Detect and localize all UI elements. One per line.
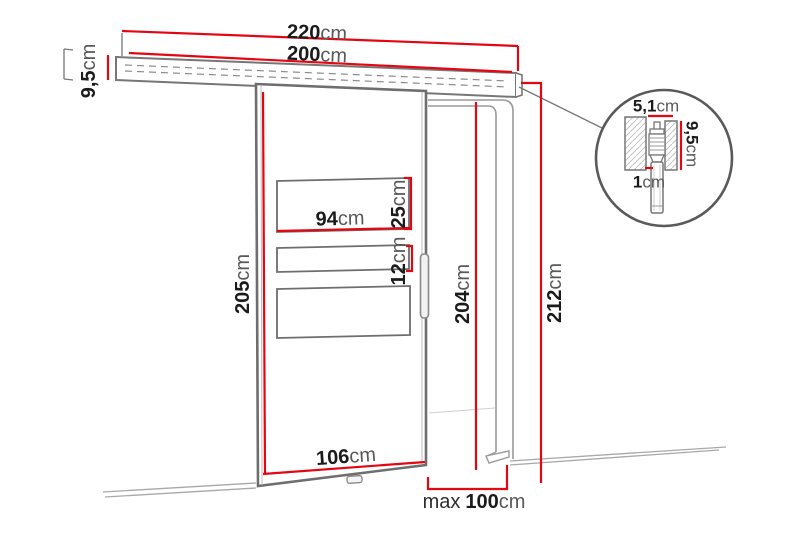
dim-glass-mid-height-label: 12cm xyxy=(389,237,409,286)
dim-detail-gap-label: 1cm xyxy=(633,174,665,191)
dim-value: 9,5 xyxy=(683,121,702,145)
sliding-door-diagram: 220cm 200cm 9,5cm 205cm 94cm 25cm 12cm 2… xyxy=(0,0,800,533)
floor-guide xyxy=(347,475,362,483)
dim-unit: cm xyxy=(452,264,474,291)
dim-value: 212 xyxy=(544,290,566,323)
dim-unit: cm xyxy=(642,173,665,192)
dim-opening-height-label: 204cm xyxy=(453,264,473,324)
dim-unit: cm xyxy=(499,491,526,513)
dim-overall-height-label: 212cm xyxy=(545,263,565,323)
dim-value: 204 xyxy=(452,291,474,324)
dim-value: 9,5 xyxy=(78,70,100,98)
dim-detail-height-label: 9,5cm xyxy=(684,121,701,167)
dim-unit: cm xyxy=(320,44,348,67)
dim-rail-height-label: 9,5cm xyxy=(79,44,99,98)
dim-unit: cm xyxy=(388,180,410,207)
dim-unit: cm xyxy=(320,22,347,45)
dim-value: 106 xyxy=(315,446,350,470)
dim-value: 205 xyxy=(232,281,254,314)
glass-panel-bottom xyxy=(277,286,410,338)
dim-prefix: max xyxy=(423,491,461,513)
dim-unit: cm xyxy=(656,97,679,116)
dim-max-width-label: max100cm xyxy=(423,492,526,512)
dim-unit: cm xyxy=(388,237,410,264)
dim-unit: cm xyxy=(683,144,702,167)
wall-block xyxy=(625,117,646,170)
dim-unit: cm xyxy=(349,444,377,468)
dim-value: 200 xyxy=(287,43,321,66)
side-block xyxy=(665,121,677,170)
dim-rail-length-label: 200cm xyxy=(287,44,348,67)
dim-door-height-label: 205cm xyxy=(233,254,253,314)
dim-unit: cm xyxy=(78,44,100,71)
dim-value: 220 xyxy=(287,21,321,44)
dim-track-total-label: 220cm xyxy=(287,22,348,44)
dim-value: 12 xyxy=(388,263,410,285)
dim-detail-width-label: 5,1cm xyxy=(633,98,679,115)
dim-value: 100 xyxy=(465,491,498,513)
dim-value: 25 xyxy=(388,206,410,228)
dim-value: 5,1 xyxy=(633,97,657,116)
door-handle xyxy=(421,254,429,318)
dim-unit: cm xyxy=(338,207,365,230)
dim-glass-width-label: 94cm xyxy=(315,208,364,229)
dim-glass-top-height-label: 25cm xyxy=(389,180,409,229)
dim-unit: cm xyxy=(544,263,566,290)
dim-unit: cm xyxy=(232,254,254,281)
frame-sill xyxy=(486,451,509,463)
dim-door-width-label: 106cm xyxy=(315,445,376,469)
detail-leader-line xyxy=(519,87,602,128)
dim-value: 94 xyxy=(315,208,338,231)
